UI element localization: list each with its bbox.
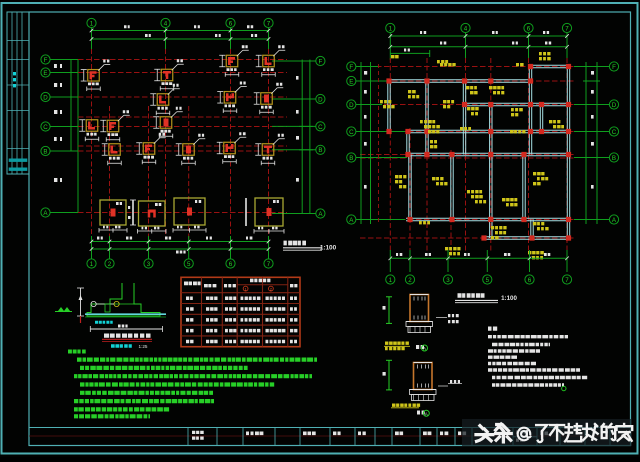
svg-text:4: 4	[464, 25, 468, 32]
svg-text:3: 3	[446, 277, 450, 284]
svg-text:1:25: 1:25	[139, 344, 148, 349]
svg-text:F: F	[612, 64, 616, 71]
svg-text:E: E	[43, 70, 47, 77]
svg-text:7: 7	[267, 20, 271, 27]
svg-text:B: B	[349, 155, 353, 162]
svg-text:5: 5	[486, 277, 490, 284]
svg-text:2: 2	[408, 277, 412, 284]
svg-text:D: D	[43, 94, 48, 101]
svg-text:4: 4	[164, 20, 168, 27]
svg-text:F: F	[349, 64, 353, 71]
svg-text:F: F	[44, 57, 48, 64]
svg-text:1: 1	[389, 25, 393, 32]
svg-text:1: 1	[245, 287, 247, 291]
svg-text:3: 3	[147, 261, 151, 268]
svg-text:C: C	[318, 124, 323, 131]
svg-text:6: 6	[229, 261, 233, 268]
svg-text:C: C	[43, 124, 48, 131]
svg-text:7: 7	[565, 25, 569, 32]
svg-text:6: 6	[229, 20, 233, 27]
svg-text:1: 1	[90, 261, 94, 268]
svg-text:1:100: 1:100	[501, 295, 517, 302]
svg-text:6: 6	[528, 277, 532, 284]
svg-text:1: 1	[90, 20, 94, 27]
svg-text:7: 7	[267, 261, 271, 268]
svg-text:5: 5	[187, 261, 191, 268]
svg-text:C: C	[349, 129, 354, 136]
svg-text:7: 7	[565, 277, 569, 284]
svg-text:E: E	[349, 78, 353, 85]
svg-text:A: A	[425, 411, 428, 416]
svg-text:6: 6	[527, 25, 531, 32]
svg-text:A: A	[423, 346, 426, 351]
svg-text:B: B	[612, 155, 616, 162]
svg-text:D: D	[612, 102, 617, 109]
svg-text:C: C	[612, 129, 617, 136]
svg-text:2: 2	[108, 261, 112, 268]
svg-text:B: B	[43, 148, 47, 155]
svg-text:1:100: 1:100	[320, 245, 337, 252]
svg-text:D: D	[318, 96, 323, 103]
svg-text:B: B	[318, 147, 322, 154]
svg-text:1: 1	[389, 277, 393, 284]
svg-text:F: F	[319, 58, 323, 65]
svg-text:D: D	[349, 102, 354, 109]
svg-text:2: 2	[270, 287, 272, 291]
